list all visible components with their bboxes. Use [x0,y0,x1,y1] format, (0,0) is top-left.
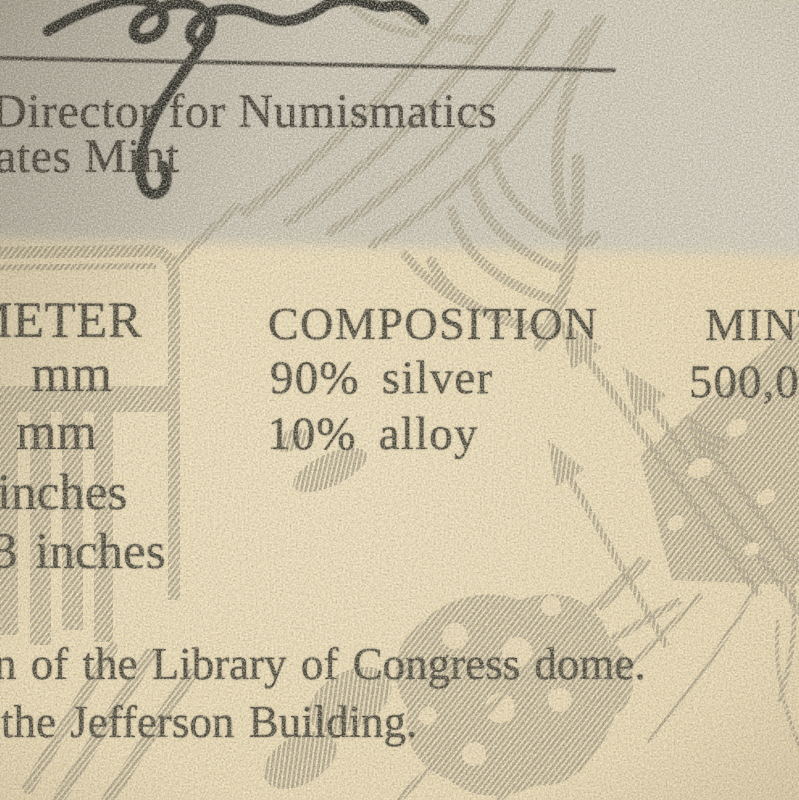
mintage-value: 500,0 [689,359,799,406]
footer-caption-line1: n of the Library of Congress dome. [0,642,646,687]
mintage-heading: MINT [705,302,799,348]
signatory-title: Director for Numismatics [0,88,497,136]
composition-alloy: 10% alloy [267,411,479,458]
diameter-value-mm-2: mm [16,407,97,459]
diameter-value-mm-1: mm [31,349,112,401]
diameter-value-inches-1: inches [0,468,127,519]
composition-heading: COMPOSITION [268,301,599,347]
footer-caption-line2: the Jefferson Building. [1,700,417,745]
composition-silver: 90% silver [270,355,493,402]
signatory-org: ates Mint [0,133,179,181]
printed-ink-layer: Director for Numismatics ates Mint METER… [0,0,799,800]
diameter-heading: METER [0,296,142,347]
diameter-value-inches-2: 3 inches [0,527,166,578]
certificate-photo: Director for Numismatics ates Mint METER… [0,0,799,800]
